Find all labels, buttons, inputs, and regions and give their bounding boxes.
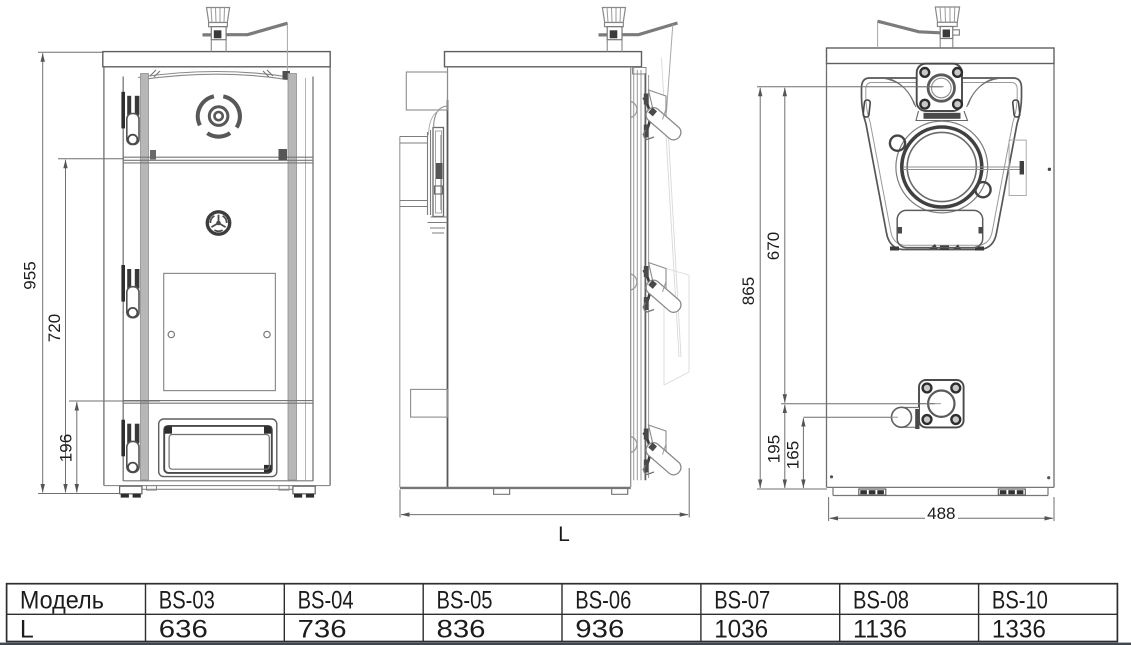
svg-text:L: L	[558, 523, 570, 546]
svg-text:BS-07: BS-07	[714, 587, 770, 615]
svg-text:BS-08: BS-08	[853, 587, 909, 615]
svg-text:BS-05: BS-05	[437, 587, 493, 615]
svg-text:636: 636	[159, 616, 208, 644]
svg-text:BS-03: BS-03	[159, 587, 215, 615]
svg-text:1136: 1136	[853, 616, 907, 644]
svg-text:196: 196	[57, 434, 76, 462]
svg-text:BS-06: BS-06	[575, 587, 631, 615]
svg-text:BS-10: BS-10	[992, 587, 1048, 615]
svg-text:1036: 1036	[714, 616, 768, 644]
svg-text:165: 165	[784, 441, 803, 469]
svg-text:L: L	[20, 616, 34, 644]
svg-text:BS-04: BS-04	[298, 587, 354, 615]
svg-text:836: 836	[437, 616, 486, 644]
svg-text:736: 736	[298, 616, 347, 644]
svg-text:936: 936	[575, 616, 624, 644]
svg-text:955: 955	[21, 261, 40, 289]
svg-text:865: 865	[739, 277, 758, 305]
svg-text:720: 720	[45, 314, 64, 342]
svg-text:195: 195	[765, 435, 784, 463]
svg-text:1336: 1336	[992, 616, 1046, 644]
svg-text:670: 670	[764, 232, 783, 260]
svg-text:Модель: Модель	[20, 587, 104, 615]
svg-text:488: 488	[927, 504, 955, 523]
